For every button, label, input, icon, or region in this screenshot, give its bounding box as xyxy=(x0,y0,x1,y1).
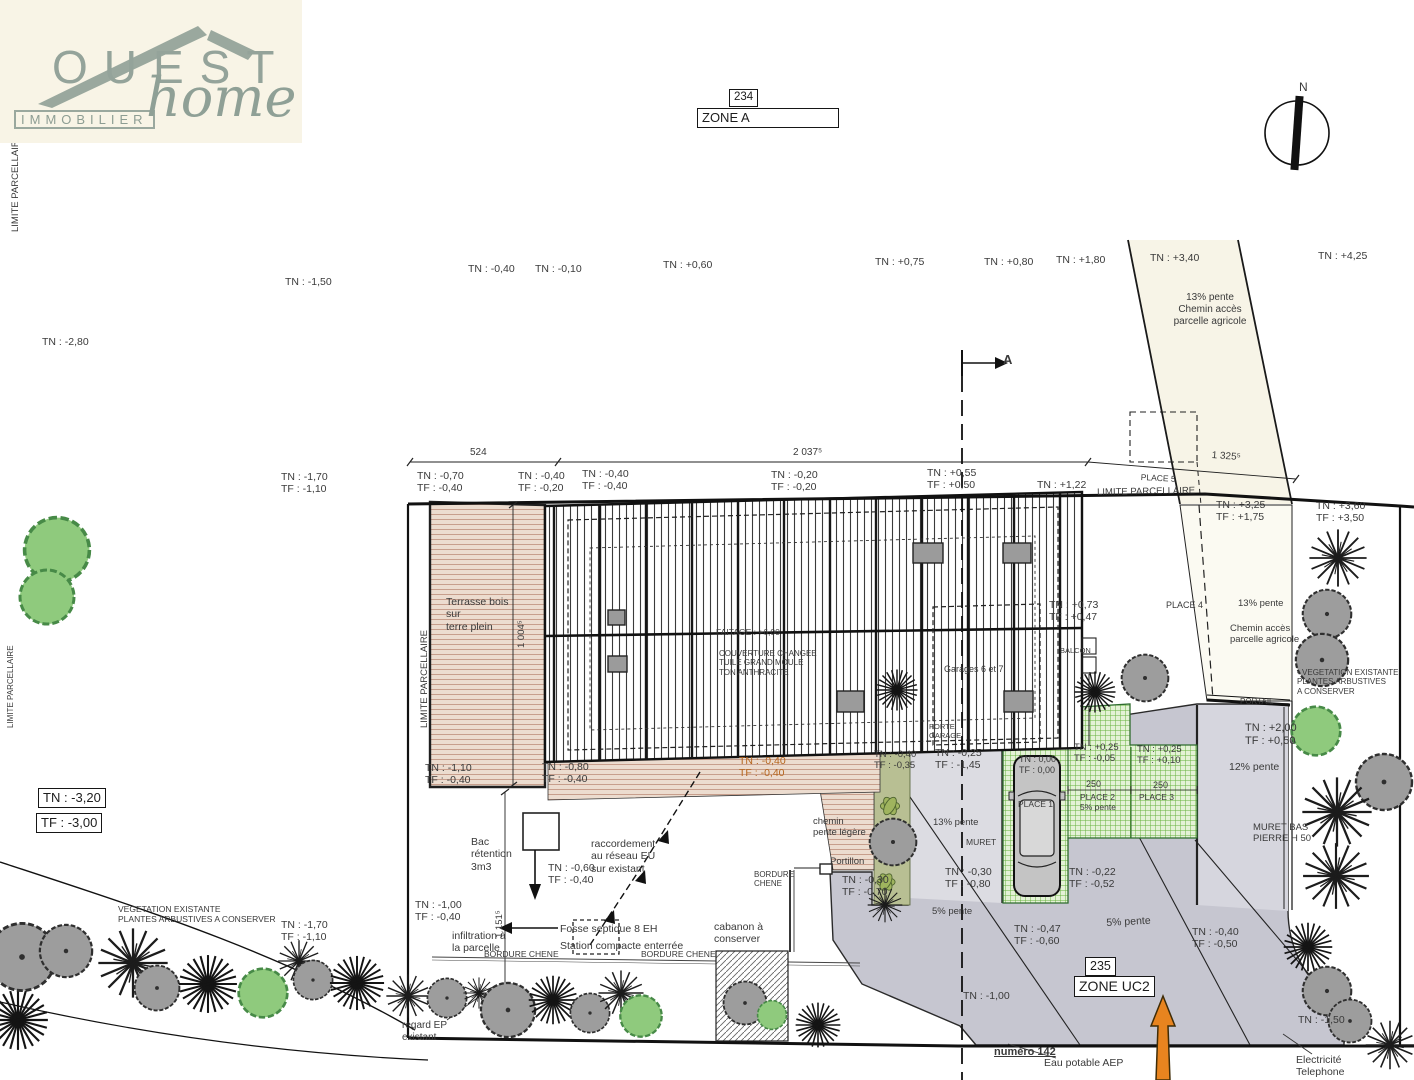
driveway-right-ramp xyxy=(1197,705,1288,911)
mirror xyxy=(1060,792,1065,800)
tree-black-star xyxy=(876,669,917,710)
tree-black-branch xyxy=(1366,1021,1414,1070)
tree-black-star xyxy=(1284,923,1333,972)
logo-tagline: IMMOBILIER xyxy=(14,110,155,129)
tree-gray xyxy=(1329,1000,1372,1043)
tree-gray xyxy=(293,960,332,999)
skylight xyxy=(1003,543,1031,563)
driveway-upper-zone xyxy=(908,746,1002,903)
bac-retention xyxy=(523,813,559,850)
tree-gray xyxy=(870,819,917,866)
tree-black-branch xyxy=(1303,843,1369,909)
skylight xyxy=(913,543,943,563)
skylight xyxy=(608,656,627,672)
tree-black-star xyxy=(1074,671,1115,712)
tree-gray xyxy=(1303,590,1352,639)
tree-green xyxy=(20,570,74,624)
down-arrow-icon xyxy=(529,884,541,900)
tree-green xyxy=(758,1001,787,1030)
tree-green xyxy=(1292,707,1341,756)
skylight xyxy=(837,691,864,712)
logo-script-home: home xyxy=(146,66,296,129)
vegetation-band-lower xyxy=(0,1002,428,1060)
mirror xyxy=(1009,792,1014,800)
tree-gray xyxy=(1122,655,1169,702)
skylight xyxy=(1004,691,1033,712)
portillon-gate xyxy=(820,864,832,874)
site-plan-drawing xyxy=(0,0,1414,1080)
tree-gray xyxy=(40,925,92,977)
tree-black-branch xyxy=(1309,529,1366,586)
building-roof xyxy=(545,492,1096,762)
north-arrow-icon xyxy=(1265,96,1329,170)
balcony xyxy=(1082,657,1096,673)
tree-gray xyxy=(481,983,535,1037)
chemin-path xyxy=(820,786,874,870)
agricultural-path xyxy=(1128,240,1292,701)
wood-terrace xyxy=(430,502,545,787)
tree-gray xyxy=(570,993,609,1032)
tree-gray xyxy=(427,978,466,1017)
tree-black-star xyxy=(330,956,384,1010)
tree-green xyxy=(239,969,288,1018)
section-arrow-icon xyxy=(995,357,1008,369)
tree-gray xyxy=(135,966,180,1011)
tree-black-branch xyxy=(1302,777,1371,846)
tree-black-branch xyxy=(868,888,903,923)
car xyxy=(1009,756,1065,896)
balcony xyxy=(1082,638,1096,654)
skylight xyxy=(608,610,625,625)
tree-black-branch xyxy=(386,974,429,1017)
fosse-septique xyxy=(573,920,619,954)
site-plan-page: OUEST IMMOBILIER home TN : -2,80TN : -1,… xyxy=(0,0,1414,1080)
tree-gray xyxy=(1296,634,1348,686)
tree-black-star xyxy=(179,955,237,1013)
tree-green xyxy=(620,995,661,1036)
tree-black-star xyxy=(796,1003,841,1048)
bordure-chene-line xyxy=(432,957,860,963)
tree-black-star xyxy=(0,990,48,1050)
infiltration-arrow-icon xyxy=(499,922,512,934)
logo: OUEST IMMOBILIER home xyxy=(0,0,302,143)
